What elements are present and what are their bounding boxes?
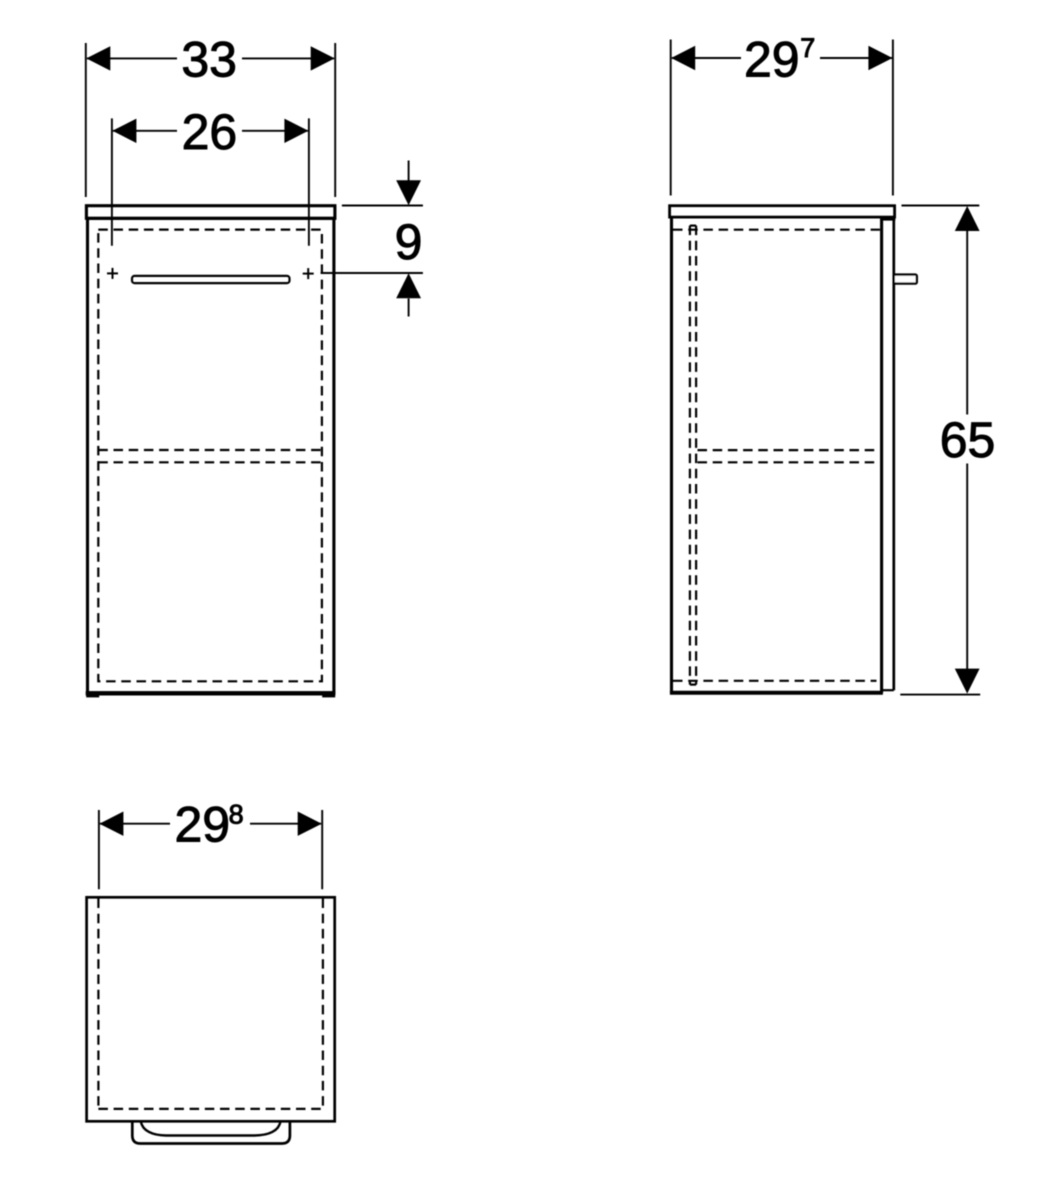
svg-text:65: 65 xyxy=(940,412,996,468)
svg-text:33: 33 xyxy=(181,32,237,88)
svg-text:8: 8 xyxy=(229,799,244,829)
svg-text:9: 9 xyxy=(395,214,423,270)
svg-text:7: 7 xyxy=(800,33,815,63)
svg-text:26: 26 xyxy=(182,104,238,160)
svg-text:29: 29 xyxy=(174,797,230,853)
svg-text:29: 29 xyxy=(744,32,800,88)
